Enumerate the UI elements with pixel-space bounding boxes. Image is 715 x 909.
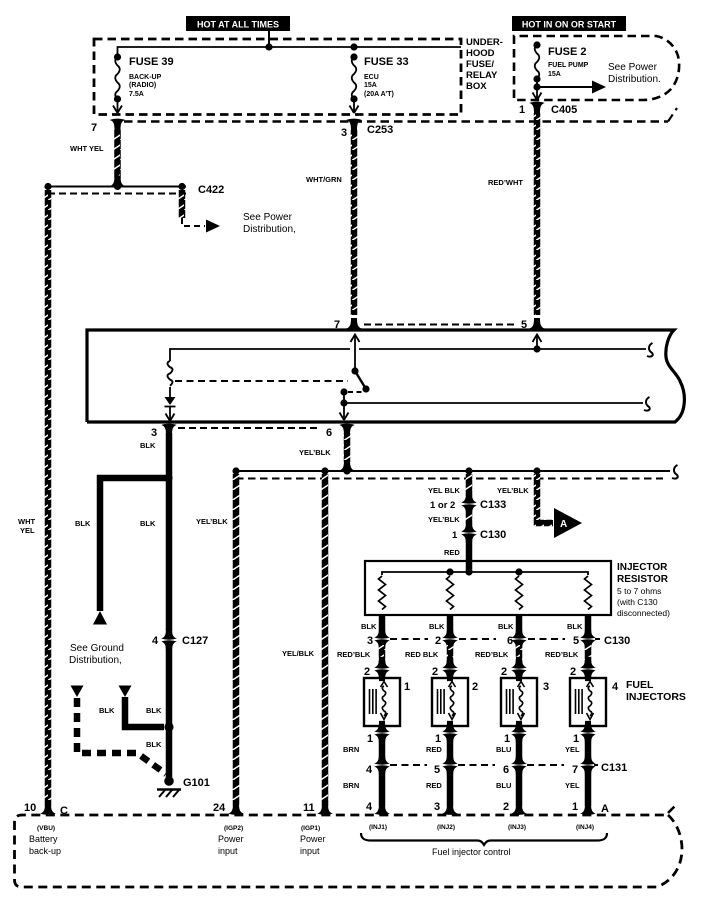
svg-text:(IGP1): (IGP1)	[301, 825, 320, 832]
svg-text:See Power: See Power	[243, 212, 293, 223]
svg-text:FUSE 39: FUSE 39	[129, 56, 174, 68]
svg-text:3: 3	[367, 635, 373, 647]
svg-text:FUEL PUMP: FUEL PUMP	[548, 62, 589, 69]
svg-text:RED’BLK: RED’BLK	[545, 650, 579, 659]
svg-text:RED’BLK: RED’BLK	[475, 650, 509, 659]
svg-text:RED BLK: RED BLK	[405, 650, 439, 659]
svg-text:A: A	[601, 803, 609, 815]
svg-text:4: 4	[612, 681, 619, 693]
svg-text:YEL’BLK: YEL’BLK	[497, 486, 529, 495]
svg-text:15A: 15A	[364, 82, 377, 89]
svg-text:BLK: BLK	[498, 622, 514, 631]
svg-text:C131: C131	[601, 762, 627, 774]
svg-text:7: 7	[572, 764, 578, 776]
svg-text:BRN: BRN	[343, 745, 359, 754]
svg-text:BLK: BLK	[567, 622, 583, 631]
svg-text:BACK-UP: BACK-UP	[129, 74, 162, 81]
svg-text:YEL: YEL	[565, 781, 580, 790]
svg-text:1: 1	[367, 733, 373, 745]
svg-text:WHT: WHT	[18, 517, 35, 526]
svg-text:Distribution,: Distribution,	[69, 655, 122, 666]
svg-text:FUSE 33: FUSE 33	[364, 56, 409, 68]
svg-text:3: 3	[543, 681, 549, 693]
svg-text:WHT/GRN: WHT/GRN	[306, 175, 342, 184]
svg-text:RED’BLK: RED’BLK	[337, 650, 371, 659]
svg-text:(INJ2): (INJ2)	[437, 824, 455, 831]
svg-text:disconnected): disconnected)	[617, 608, 670, 618]
svg-text:3: 3	[151, 427, 157, 439]
svg-text:6: 6	[326, 427, 332, 439]
svg-text:C130: C130	[480, 529, 506, 541]
svg-text:G101: G101	[183, 777, 210, 789]
svg-text:BLK: BLK	[140, 519, 156, 528]
svg-text:1 or 2: 1 or 2	[430, 500, 455, 511]
svg-text:7.5A: 7.5A	[129, 91, 144, 98]
svg-text:4: 4	[152, 635, 159, 647]
svg-text:YEL: YEL	[20, 526, 35, 535]
svg-text:RED: RED	[444, 548, 460, 557]
svg-text:4: 4	[366, 764, 373, 776]
svg-text:input: input	[218, 846, 238, 856]
svg-text:Distribution,: Distribution,	[243, 224, 296, 235]
svg-text:1: 1	[504, 733, 510, 745]
svg-text:BLK: BLK	[429, 622, 445, 631]
svg-text:BLK: BLK	[146, 706, 162, 715]
svg-text:C130: C130	[604, 635, 630, 647]
svg-text:YEL: YEL	[565, 745, 580, 754]
svg-text:15A: 15A	[548, 71, 561, 78]
svg-text:(RADIO): (RADIO)	[129, 82, 156, 89]
svg-text:BLU: BLU	[496, 781, 511, 790]
svg-text:C405: C405	[551, 104, 577, 116]
svg-text:YEL’BLK: YEL’BLK	[299, 448, 331, 457]
svg-text:WHT YEL: WHT YEL	[70, 144, 104, 153]
svg-text:2: 2	[501, 666, 507, 678]
svg-text:C253: C253	[367, 124, 393, 136]
svg-text:INJECTOR: INJECTOR	[617, 562, 668, 573]
svg-text:C133: C133	[480, 499, 506, 511]
svg-text:4: 4	[366, 801, 373, 813]
svg-text:YEL/BLK: YEL/BLK	[282, 649, 315, 658]
svg-text:BOX: BOX	[466, 81, 487, 92]
svg-text:10: 10	[24, 802, 36, 814]
svg-text:5: 5	[434, 764, 440, 776]
svg-text:2: 2	[570, 666, 576, 678]
svg-text:RELAY: RELAY	[466, 70, 498, 81]
svg-text:6: 6	[503, 764, 509, 776]
svg-text:Distribution.: Distribution.	[608, 74, 661, 85]
svg-text:C422: C422	[198, 184, 224, 196]
svg-text:See Power: See Power	[608, 62, 658, 73]
svg-text:3: 3	[434, 801, 440, 813]
svg-text:BLK: BLK	[140, 441, 156, 450]
svg-text:BLK: BLK	[146, 740, 162, 749]
svg-text:BRN: BRN	[343, 781, 359, 790]
svg-text:ECU: ECU	[364, 74, 379, 81]
svg-text:RED’WHT: RED’WHT	[488, 178, 523, 187]
svg-text:2: 2	[432, 666, 438, 678]
svg-text:See Ground: See Ground	[70, 643, 124, 654]
svg-text:7: 7	[91, 122, 97, 134]
svg-text:(INJ4): (INJ4)	[576, 824, 594, 831]
svg-text:1: 1	[435, 733, 441, 745]
svg-text:Power: Power	[218, 834, 244, 844]
svg-text:HOT AT ALL TIMES: HOT AT ALL TIMES	[197, 20, 279, 30]
svg-text:(20A A’T): (20A A’T)	[364, 91, 394, 98]
svg-text:C127: C127	[182, 635, 208, 647]
svg-text:(VBU): (VBU)	[37, 825, 55, 832]
svg-text:RESISTOR: RESISTOR	[617, 574, 669, 585]
svg-text:1: 1	[404, 681, 410, 693]
svg-text:2: 2	[503, 801, 509, 813]
svg-text:2: 2	[364, 666, 370, 678]
svg-text:HOOD: HOOD	[466, 48, 495, 59]
svg-text:back-up: back-up	[29, 846, 61, 856]
svg-text:HOT IN ON OR START: HOT IN ON OR START	[522, 20, 617, 30]
svg-text:FUEL: FUEL	[626, 679, 654, 691]
svg-text:FUSE 2: FUSE 2	[548, 46, 587, 58]
svg-text:(IGP2): (IGP2)	[224, 825, 243, 832]
svg-text:BLU: BLU	[496, 745, 511, 754]
svg-text:BLK: BLK	[99, 706, 115, 715]
svg-text:A: A	[560, 519, 567, 530]
svg-text:1: 1	[573, 733, 579, 745]
svg-text:5 to 7 ohms: 5 to 7 ohms	[617, 586, 661, 596]
svg-text:(INJ1): (INJ1)	[369, 824, 387, 831]
svg-text:(INJ3): (INJ3)	[508, 824, 526, 831]
svg-text:2: 2	[435, 635, 441, 647]
svg-text:FUSE/: FUSE/	[466, 59, 494, 70]
svg-text:1: 1	[519, 104, 525, 116]
svg-text:YEL’BLK: YEL’BLK	[428, 515, 460, 524]
svg-text:UNDER-: UNDER-	[466, 37, 503, 48]
svg-text:1: 1	[452, 530, 458, 541]
svg-text:input: input	[300, 846, 320, 856]
svg-text:C: C	[60, 805, 68, 817]
svg-text:Power: Power	[300, 834, 326, 844]
svg-text:1: 1	[572, 801, 578, 813]
svg-text:INJECTORS: INJECTORS	[626, 691, 686, 703]
svg-text:(with C130: (with C130	[617, 597, 658, 607]
svg-text:BLK: BLK	[361, 622, 377, 631]
svg-text:24: 24	[213, 802, 226, 814]
svg-text:3: 3	[341, 127, 347, 139]
svg-text:YEL BLK: YEL BLK	[428, 486, 461, 495]
svg-text:6: 6	[507, 635, 513, 647]
svg-text:Battery: Battery	[29, 834, 58, 844]
svg-text:2: 2	[472, 681, 478, 693]
svg-text:RED: RED	[426, 781, 442, 790]
svg-text:Fuel injector control: Fuel injector control	[432, 847, 511, 857]
svg-text:5: 5	[573, 635, 579, 647]
svg-text:YEL’BLK: YEL’BLK	[196, 517, 228, 526]
svg-text:11: 11	[303, 802, 315, 814]
svg-text:BLK: BLK	[75, 519, 91, 528]
svg-text:RED: RED	[426, 745, 442, 754]
